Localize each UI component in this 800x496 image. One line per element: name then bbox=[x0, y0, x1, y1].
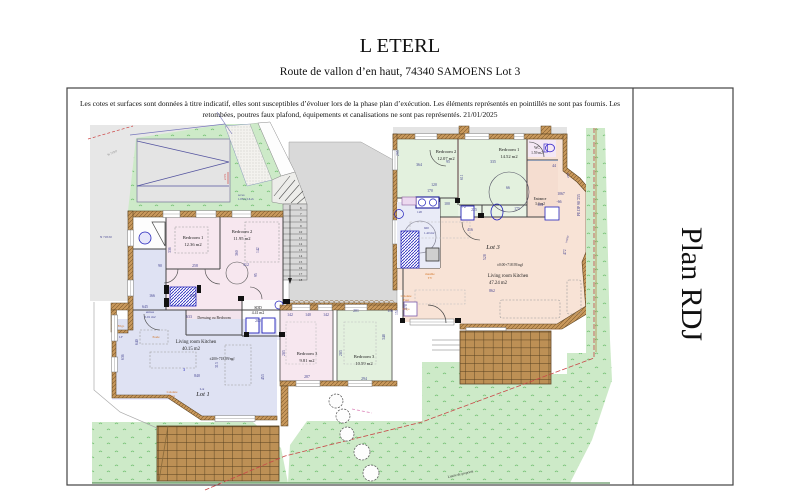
svg-text:11.95 m2: 11.95 m2 bbox=[233, 236, 251, 241]
svg-text:Frigo: Frigo bbox=[118, 324, 125, 328]
svg-text:120: 120 bbox=[431, 183, 437, 187]
svg-text:Dressing ou Bedroom: Dressing ou Bedroom bbox=[197, 316, 230, 320]
svg-text:12: 12 bbox=[299, 242, 303, 246]
svg-text:Bedroom 3: Bedroom 3 bbox=[354, 354, 375, 359]
svg-text:Lot 1: Lot 1 bbox=[195, 391, 210, 398]
svg-text:17: 17 bbox=[299, 272, 303, 276]
svg-text:142: 142 bbox=[287, 313, 293, 317]
svg-text:14.52 m2: 14.52 m2 bbox=[500, 154, 518, 159]
svg-text:287: 287 bbox=[304, 375, 310, 379]
svg-text:10: 10 bbox=[299, 230, 303, 234]
svg-text:Frigo: Frigo bbox=[403, 307, 410, 311]
svg-text:640: 640 bbox=[135, 339, 139, 345]
svg-text:40.15 m2: 40.15 m2 bbox=[182, 347, 201, 352]
svg-text:44: 44 bbox=[552, 164, 556, 168]
svg-text:294: 294 bbox=[361, 377, 367, 381]
svg-text:Living room Kitchen: Living room Kitchen bbox=[488, 274, 529, 279]
svg-text:-66: -66 bbox=[556, 200, 561, 204]
svg-text:170: 170 bbox=[427, 189, 433, 193]
svg-text:10.59 m2: 10.59 m2 bbox=[355, 361, 373, 366]
svg-text:116: 116 bbox=[387, 309, 393, 313]
svg-text:Entrance: Entrance bbox=[534, 197, 547, 201]
svg-text:L ETERL: L ETERL bbox=[360, 35, 441, 57]
svg-text:453: 453 bbox=[261, 374, 265, 380]
svg-text:364: 364 bbox=[416, 163, 422, 167]
svg-text:TV: TV bbox=[428, 276, 433, 280]
svg-text:Living room Kitchen: Living room Kitchen bbox=[176, 340, 217, 345]
svg-text:100: 100 bbox=[444, 202, 450, 206]
svg-text:140: 140 bbox=[305, 313, 311, 317]
svg-text:258: 258 bbox=[192, 264, 198, 268]
svg-text:258: 258 bbox=[190, 294, 196, 298]
svg-text:120: 120 bbox=[417, 210, 422, 214]
svg-text:645: 645 bbox=[142, 305, 148, 309]
svg-text:4.41 m2: 4.41 m2 bbox=[252, 311, 265, 315]
svg-text:166: 166 bbox=[149, 294, 155, 298]
svg-text:175: 175 bbox=[514, 207, 520, 211]
svg-text:Lot: Lot bbox=[200, 387, 205, 391]
svg-text:336: 336 bbox=[168, 247, 172, 253]
svg-text:472: 472 bbox=[563, 249, 567, 255]
svg-text:SDD: SDD bbox=[254, 306, 262, 310]
svg-text:±200+718.89/ngf: ±200+718.89/ngf bbox=[209, 357, 235, 361]
svg-text:283: 283 bbox=[282, 350, 286, 356]
svg-text:295: 295 bbox=[396, 150, 400, 156]
svg-text:283: 283 bbox=[339, 350, 343, 356]
svg-text:255: 255 bbox=[566, 173, 570, 179]
svg-text:16: 16 bbox=[299, 266, 303, 270]
svg-text:95: 95 bbox=[254, 273, 258, 277]
svg-text:Route de vallon d’en haut, 743: Route de vallon d’en haut, 74340 SAMOENS… bbox=[280, 65, 521, 78]
svg-text:12.36 m2: 12.36 m2 bbox=[184, 242, 202, 247]
svg-text:600: 600 bbox=[424, 226, 429, 230]
svg-text:348: 348 bbox=[382, 334, 386, 340]
svg-text:2.5%: 2.5% bbox=[223, 173, 227, 180]
svg-text:14: 14 bbox=[299, 254, 303, 258]
svg-text:Plan RDJ: Plan RDJ bbox=[675, 227, 708, 342]
svg-text:Les cotes et surfaces sont don: Les cotes et surfaces sont données à tit… bbox=[80, 99, 620, 108]
svg-text:5.01 m2: 5.01 m2 bbox=[144, 315, 155, 319]
svg-text:416: 416 bbox=[467, 228, 473, 232]
svg-text:142: 142 bbox=[323, 313, 329, 317]
svg-text:201: 201 bbox=[353, 309, 359, 313]
svg-text:Bedroom 2: Bedroom 2 bbox=[436, 149, 457, 154]
svg-text:11: 11 bbox=[299, 236, 302, 240]
svg-text:WC: WC bbox=[534, 146, 540, 150]
svg-text:47.24 m2: 47.24 m2 bbox=[489, 281, 508, 286]
svg-text:360: 360 bbox=[235, 250, 239, 256]
svg-text:313: 313 bbox=[215, 362, 219, 368]
svg-text:200: 200 bbox=[255, 319, 261, 323]
svg-text:335: 335 bbox=[490, 160, 496, 164]
svg-text:Bedroom 1: Bedroom 1 bbox=[183, 235, 204, 240]
svg-text:13: 13 bbox=[299, 248, 303, 252]
svg-text:1067: 1067 bbox=[557, 192, 565, 196]
svg-text:entree: entree bbox=[146, 310, 155, 314]
svg-text:66: 66 bbox=[506, 186, 510, 190]
svg-text:Poele: Poele bbox=[152, 335, 160, 339]
svg-text:862: 862 bbox=[489, 289, 495, 293]
svg-text:±0.00+718.95/ngf: ±0.00+718.95/ngf bbox=[497, 263, 524, 267]
svg-text:Four: Four bbox=[403, 298, 410, 302]
svg-text:15: 15 bbox=[299, 260, 303, 264]
svg-text:18: 18 bbox=[299, 278, 303, 282]
svg-text:95: 95 bbox=[446, 160, 450, 164]
svg-text:164: 164 bbox=[537, 203, 543, 207]
svg-text:Bedroom 2: Bedroom 2 bbox=[232, 229, 253, 234]
svg-text:840: 840 bbox=[194, 374, 200, 378]
svg-text:1.055 (2.6.2s: 1.055 (2.6.2s bbox=[238, 197, 254, 201]
svg-text:312: 312 bbox=[243, 263, 249, 267]
svg-text:611: 611 bbox=[460, 174, 464, 180]
svg-text:LF: LF bbox=[119, 335, 123, 339]
svg-text:151: 151 bbox=[395, 309, 399, 315]
svg-text:1.40 m2: 1.40 m2 bbox=[424, 231, 435, 235]
svg-text:225: 225 bbox=[471, 208, 477, 212]
svg-text:Bedroom 1: Bedroom 1 bbox=[499, 147, 520, 152]
svg-text:PE DP 98 '255: PE DP 98 '255 bbox=[577, 194, 581, 216]
svg-text:633: 633 bbox=[186, 315, 192, 319]
svg-text:172: 172 bbox=[460, 205, 466, 209]
svg-text:Four: Four bbox=[169, 394, 176, 398]
svg-text:142: 142 bbox=[256, 247, 260, 253]
svg-text:528: 528 bbox=[483, 254, 487, 260]
svg-text:1.59 m2: 1.59 m2 bbox=[531, 151, 543, 155]
svg-text:N 718.50: N 718.50 bbox=[100, 235, 112, 239]
svg-text:Lot 3: Lot 3 bbox=[485, 244, 500, 251]
svg-text:636: 636 bbox=[121, 354, 125, 360]
svg-text:retombées, poutres faux plafon: retombées, poutres faux plafond, équipem… bbox=[203, 110, 498, 119]
svg-text:90: 90 bbox=[158, 264, 162, 268]
svg-text:Bedroom 3: Bedroom 3 bbox=[297, 351, 318, 356]
svg-text:9.81 m2: 9.81 m2 bbox=[299, 358, 315, 363]
